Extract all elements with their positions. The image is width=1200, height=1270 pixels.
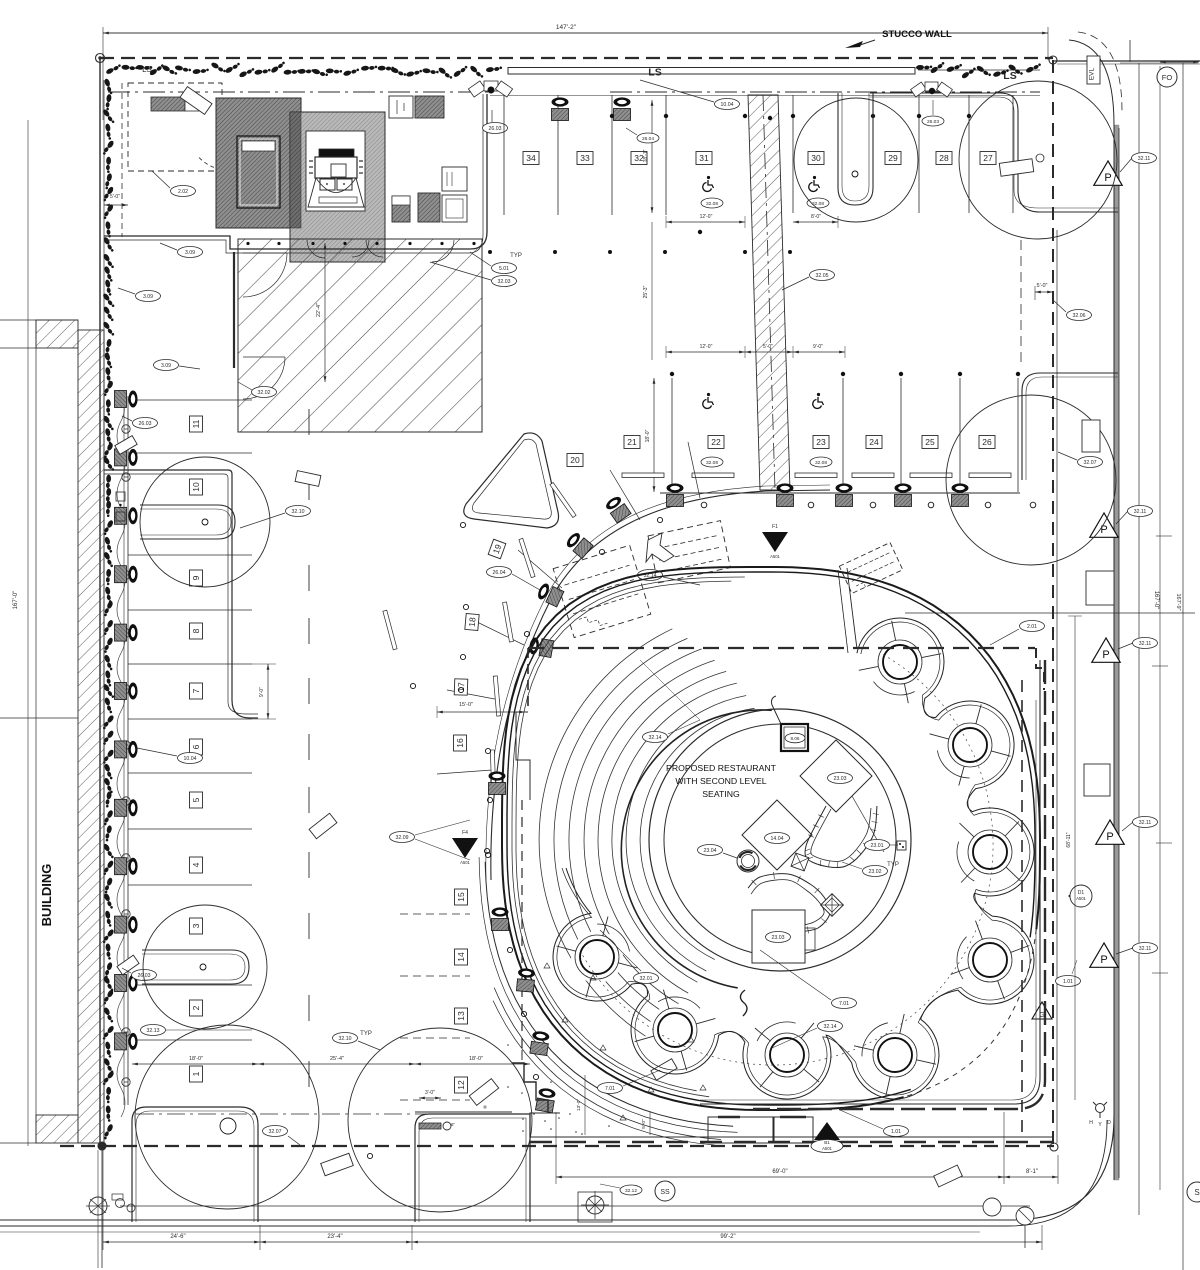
svg-text:32.14: 32.14 — [824, 1024, 837, 1030]
svg-text:32.08: 32.08 — [815, 460, 827, 466]
svg-text:32.02: 32.02 — [258, 390, 271, 396]
svg-text:26: 26 — [982, 437, 992, 447]
svg-text:F1: F1 — [772, 524, 778, 530]
svg-text:A501: A501 — [822, 1146, 832, 1151]
svg-text:A501: A501 — [770, 554, 780, 559]
svg-text:14: 14 — [456, 952, 466, 962]
svg-text:4: 4 — [191, 862, 201, 867]
svg-text:10: 10 — [191, 482, 201, 492]
svg-text:32.10: 32.10 — [339, 1036, 352, 1042]
svg-text:3'-0": 3'-0" — [425, 1090, 435, 1096]
svg-text:TYP: TYP — [510, 253, 522, 259]
svg-text:2.01: 2.01 — [1027, 624, 1037, 630]
svg-text:18'-0": 18'-0" — [189, 1056, 203, 1062]
svg-text:25'-3": 25'-3" — [643, 285, 649, 298]
svg-text:3: 3 — [191, 923, 201, 928]
svg-text:26.03: 26.03 — [489, 126, 502, 132]
svg-text:LS: LS — [648, 67, 661, 79]
svg-text:P: P — [1104, 172, 1111, 184]
svg-text:9: 9 — [191, 575, 201, 580]
svg-text:12'-0": 12'-0" — [700, 344, 713, 350]
svg-text:12: 12 — [456, 1080, 466, 1090]
svg-text:26.03: 26.03 — [139, 421, 152, 427]
svg-text:27: 27 — [983, 153, 993, 163]
svg-text:32.07: 32.07 — [269, 1129, 282, 1135]
svg-text:3.09: 3.09 — [185, 250, 195, 256]
svg-text:32.01: 32.01 — [640, 976, 653, 982]
svg-text:11: 11 — [191, 419, 201, 428]
svg-text:32.10: 32.10 — [292, 509, 305, 515]
svg-text:32.11: 32.11 — [1139, 946, 1152, 952]
svg-text:25: 25 — [925, 437, 935, 447]
svg-text:26.04: 26.04 — [493, 570, 506, 576]
svg-text:H: H — [1089, 1120, 1093, 1126]
svg-text:68'-11": 68'-11" — [1066, 832, 1072, 847]
svg-text:22: 22 — [711, 437, 721, 447]
svg-text:26.03: 26.03 — [927, 119, 939, 125]
svg-text:32.06: 32.06 — [1073, 313, 1086, 319]
svg-text:1.01: 1.01 — [1063, 979, 1073, 985]
svg-text:P: P — [1102, 649, 1109, 661]
svg-text:6: 6 — [191, 744, 201, 749]
svg-text:15: 15 — [456, 892, 466, 902]
svg-text:17: 17 — [456, 682, 466, 692]
svg-text:32.11: 32.11 — [1139, 641, 1152, 647]
svg-text:1.01: 1.01 — [891, 1129, 901, 1135]
svg-text:TYP: TYP — [887, 862, 899, 868]
svg-text:167'-0": 167'-0" — [1153, 591, 1159, 610]
svg-text:SS: SS — [660, 1189, 670, 1196]
svg-text:22'-4": 22'-4" — [316, 303, 322, 317]
svg-text:EVL: EVL — [1089, 67, 1096, 80]
svg-text:32.08: 32.08 — [706, 201, 718, 207]
svg-text:8.06: 8.06 — [791, 736, 800, 741]
svg-text:15'-0": 15'-0" — [459, 702, 473, 708]
svg-text:10.04: 10.04 — [184, 756, 197, 762]
svg-text:23.03: 23.03 — [834, 776, 847, 782]
svg-text:32.07: 32.07 — [1084, 460, 1097, 466]
svg-text:18'-0": 18'-0" — [645, 429, 651, 442]
svg-text:32.05: 32.05 — [816, 273, 829, 279]
svg-text:PROPOSED RESTAURANT: PROPOSED RESTAURANT — [666, 763, 777, 773]
svg-text:TYP: TYP — [360, 1031, 372, 1037]
svg-text:8'-1": 8'-1" — [1026, 1169, 1038, 1175]
svg-text:28: 28 — [939, 153, 949, 163]
svg-text:23.03: 23.03 — [772, 935, 785, 941]
svg-text:WITH SECOND LEVEL: WITH SECOND LEVEL — [675, 776, 766, 786]
svg-text:34: 34 — [526, 153, 536, 163]
svg-text:SEATING: SEATING — [702, 789, 740, 799]
svg-text:10.04: 10.04 — [721, 102, 734, 108]
svg-text:5: 5 — [191, 797, 201, 802]
svg-text:33: 33 — [580, 153, 590, 163]
svg-text:23.04: 23.04 — [704, 848, 717, 854]
svg-text:99'-2": 99'-2" — [720, 1234, 735, 1240]
svg-text:BUILDING: BUILDING — [39, 864, 54, 927]
svg-text:5'-0": 5'-0" — [641, 1119, 647, 1129]
svg-text:18'-1": 18'-1" — [643, 149, 649, 162]
svg-text:F4: F4 — [462, 830, 468, 836]
svg-text:32.14: 32.14 — [649, 735, 662, 741]
svg-text:1: 1 — [191, 1071, 201, 1076]
svg-text:2: 2 — [191, 1005, 201, 1010]
svg-text:32.11: 32.11 — [1139, 820, 1152, 826]
svg-text:23'-4": 23'-4" — [327, 1234, 342, 1240]
svg-text:5'-0": 5'-0" — [763, 344, 773, 350]
svg-text:5'-0": 5'-0" — [1037, 283, 1048, 289]
svg-text:STUCCO WALL: STUCCO WALL — [882, 29, 952, 40]
svg-text:3.09: 3.09 — [143, 294, 153, 300]
svg-text:32.03: 32.03 — [498, 279, 511, 285]
svg-text:7: 7 — [191, 688, 201, 693]
svg-text:147'-2": 147'-2" — [556, 24, 577, 31]
svg-text:9'-0": 9'-0" — [813, 344, 823, 350]
svg-text:FO: FO — [1162, 73, 1173, 82]
svg-text:20: 20 — [570, 455, 580, 465]
svg-text:13: 13 — [456, 1011, 466, 1021]
svg-text:13'-0": 13'-0" — [576, 1099, 582, 1112]
svg-text:25'-4": 25'-4" — [330, 1056, 344, 1062]
svg-text:8: 8 — [191, 628, 201, 633]
svg-text:12'-0": 12'-0" — [700, 214, 713, 220]
svg-text:23: 23 — [816, 437, 826, 447]
svg-text:167'-9": 167'-9" — [1175, 593, 1181, 610]
svg-text:32.08: 32.08 — [706, 460, 718, 466]
svg-text:2.02: 2.02 — [178, 189, 188, 195]
svg-text:S: S — [1194, 1188, 1199, 1197]
svg-text:A501: A501 — [460, 860, 470, 865]
svg-text:32.11: 32.11 — [1134, 509, 1147, 515]
svg-text:P: P — [1100, 524, 1107, 536]
svg-text:32.11: 32.11 — [1138, 156, 1151, 162]
svg-text:29: 29 — [888, 153, 898, 163]
svg-text:5.01: 5.01 — [499, 266, 509, 272]
svg-text:6": 6" — [451, 1122, 455, 1127]
svg-text:32.13: 32.13 — [147, 1028, 160, 1034]
svg-text:8'-0": 8'-0" — [811, 214, 821, 220]
svg-text:7.01: 7.01 — [839, 1001, 849, 1007]
svg-text:A501: A501 — [1076, 896, 1086, 901]
svg-text:23.01: 23.01 — [871, 843, 884, 849]
svg-text:P: P — [1106, 831, 1113, 843]
svg-text:7.01: 7.01 — [605, 1086, 615, 1092]
svg-text:18'-0": 18'-0" — [469, 1056, 483, 1062]
svg-text:16: 16 — [455, 738, 465, 748]
svg-text:18: 18 — [467, 617, 478, 628]
svg-text:14.04: 14.04 — [771, 836, 784, 842]
svg-text:69'-0": 69'-0" — [772, 1169, 787, 1175]
svg-text:P: P — [1100, 954, 1107, 966]
svg-text:26.04: 26.04 — [642, 136, 654, 142]
svg-text:24: 24 — [869, 437, 879, 447]
svg-text:21: 21 — [627, 437, 637, 447]
svg-text:9'-0": 9'-0" — [259, 687, 265, 697]
svg-text:31: 31 — [699, 153, 709, 163]
svg-text:23.02: 23.02 — [869, 869, 882, 875]
svg-text:167'-0": 167'-0" — [13, 591, 19, 610]
svg-text:30: 30 — [811, 153, 821, 163]
svg-text:D: D — [1107, 1120, 1111, 1126]
svg-text:5'-0": 5'-0" — [110, 194, 120, 200]
svg-text:32.12: 32.12 — [625, 1188, 637, 1194]
svg-text:24'-6": 24'-6" — [170, 1234, 185, 1240]
svg-text:3.09: 3.09 — [161, 363, 171, 369]
svg-text:32.09: 32.09 — [396, 835, 409, 841]
svg-text:B1: B1 — [824, 1140, 830, 1145]
